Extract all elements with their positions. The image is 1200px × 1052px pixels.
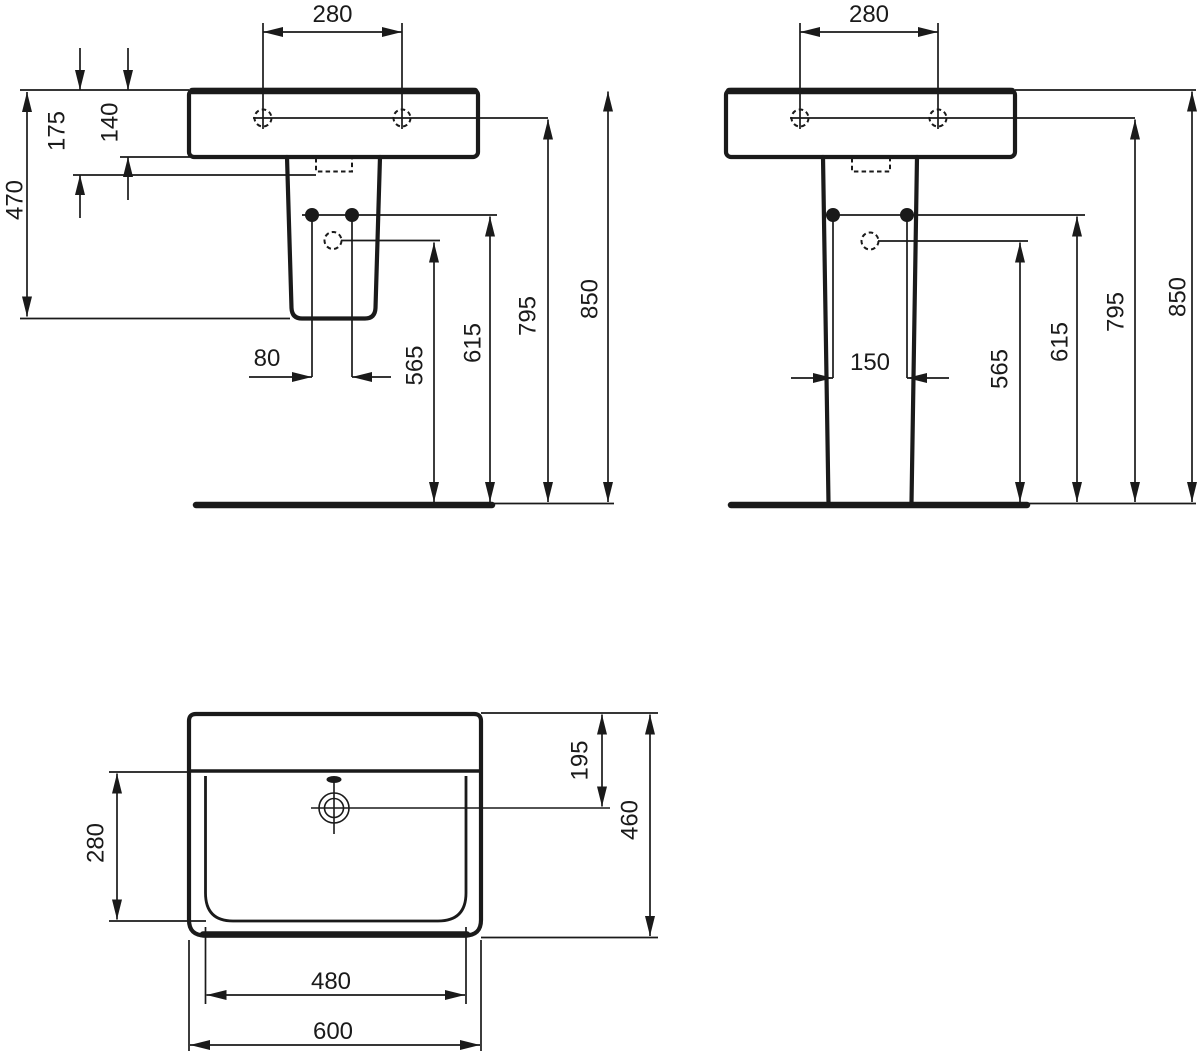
overflow-slot (327, 776, 342, 783)
dim-label-615-left: 615 (460, 323, 487, 363)
dim-label-615-right: 615 (1047, 322, 1074, 362)
dim-label-565-right: 565 (987, 349, 1014, 389)
dim-label-480: 480 (311, 968, 351, 995)
dim-label-280-plan: 280 (83, 823, 110, 863)
dim-label-470: 470 (2, 180, 29, 220)
technical-drawing-page: 280 175 140 470 80 565 615 795 850 (0, 0, 1200, 1052)
dim-label-140: 140 (97, 102, 124, 142)
dim-label-175: 175 (44, 111, 71, 151)
dim-label-565-left: 565 (402, 345, 429, 385)
dim-label-280-left: 280 (312, 1, 352, 28)
dim-label-80: 80 (254, 345, 281, 372)
dim-label-150: 150 (850, 349, 890, 376)
dim-label-460: 460 (617, 800, 644, 840)
dim-label-850-right: 850 (1165, 277, 1192, 317)
dim-label-795-right: 795 (1103, 292, 1130, 332)
dim-label-280-right: 280 (849, 1, 889, 28)
dim-label-600: 600 (313, 1018, 353, 1045)
washbasin-dimension-drawing: 280 175 140 470 80 565 615 795 850 (0, 0, 1200, 1052)
dim-label-195: 195 (567, 740, 594, 780)
dim-label-850-left: 850 (577, 279, 604, 319)
dim-label-795-left: 795 (515, 296, 542, 336)
